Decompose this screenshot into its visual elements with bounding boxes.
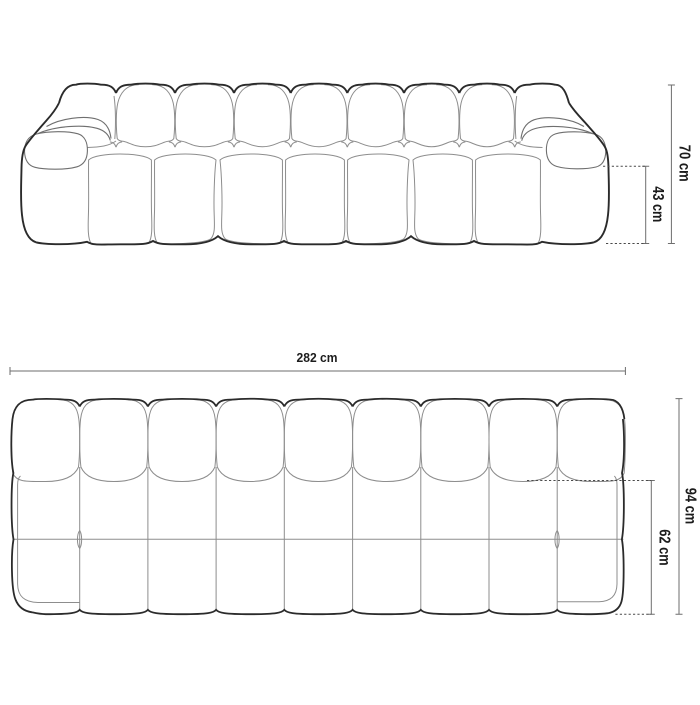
svg-text:62 cm: 62 cm <box>655 529 672 566</box>
svg-text:282 cm: 282 cm <box>297 350 338 365</box>
svg-text:70 cm: 70 cm <box>676 145 693 182</box>
svg-text:94 cm: 94 cm <box>682 488 699 525</box>
svg-text:43 cm: 43 cm <box>649 186 666 222</box>
